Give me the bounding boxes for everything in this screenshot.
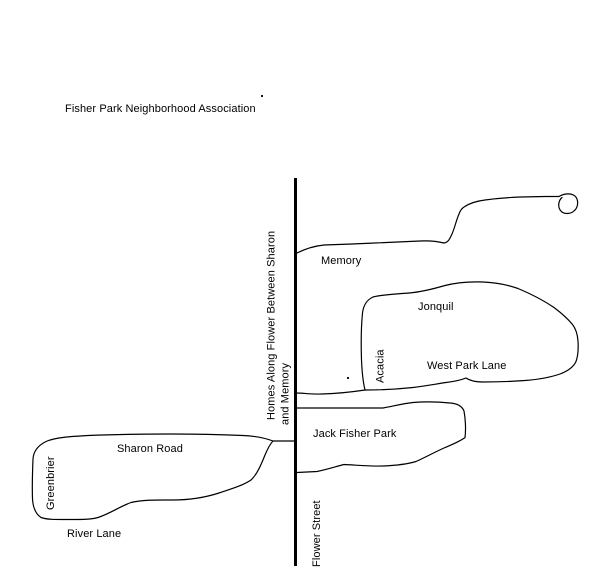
acacia-connector-path [295, 390, 365, 394]
memory-road-path [297, 194, 578, 253]
label-jack-fisher-park: Jack Fisher Park [313, 428, 397, 440]
stray-mark [347, 377, 349, 379]
stray-mark [261, 95, 263, 97]
label-river-lane: River Lane [67, 528, 121, 540]
paint-canvas: Fisher Park Neighborhood Association Mem… [0, 0, 616, 576]
map-labels: Fisher Park Neighborhood Association Mem… [45, 103, 506, 567]
label-flower-street: Flower Street [311, 500, 323, 567]
label-homes-note-line1: Homes Along Flower Between Sharon [266, 231, 278, 420]
jonquil-west-park-loop-path [361, 282, 578, 390]
map-title: Fisher Park Neighborhood Association [65, 103, 256, 115]
label-greenbrier: Greenbrier [45, 456, 57, 510]
road-lines [32, 95, 578, 566]
label-homes-note-line2: and Memory [280, 362, 292, 425]
label-jonquil: Jonquil [418, 301, 454, 313]
label-memory: Memory [321, 255, 362, 267]
label-sharon-road: Sharon Road [117, 443, 183, 455]
label-acacia: Acacia [375, 349, 387, 383]
neighborhood-map-drawing: Fisher Park Neighborhood Association Mem… [0, 0, 616, 576]
label-west-park-lane: West Park Lane [427, 360, 506, 372]
